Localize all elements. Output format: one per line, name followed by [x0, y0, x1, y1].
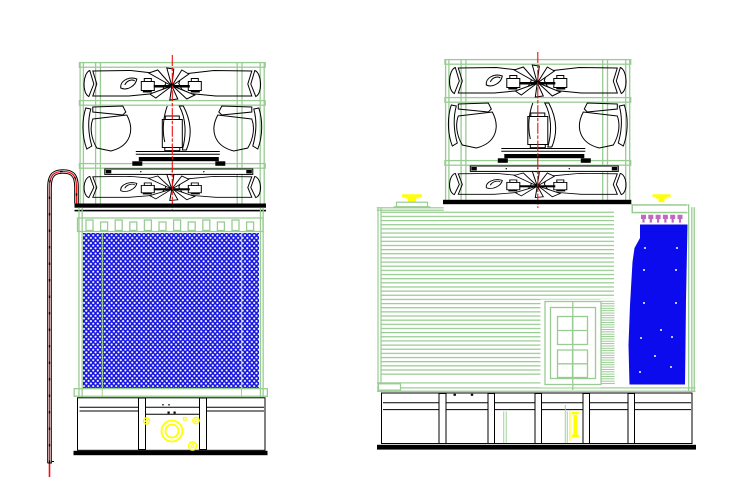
spray-nozzle-header — [632, 204, 688, 222]
distribution-nozzle-strip — [78, 218, 264, 232]
side-elevation-view — [377, 52, 696, 450]
cad-drawing-canvas — [0, 0, 749, 499]
riser-pipe — [48, 172, 77, 478]
fan-deck-right — [443, 200, 631, 204]
collection-basin-left — [74, 398, 268, 455]
cascade-panel — [629, 225, 688, 385]
vent-cap-right — [653, 194, 671, 202]
vent-cap-left — [394, 194, 431, 207]
front-elevation-view — [48, 55, 269, 477]
fan-assembly-left — [79, 55, 265, 211]
collection-basin-right — [377, 393, 696, 450]
fill-mesh-panel — [78, 208, 263, 398]
pump-circles — [144, 417, 200, 450]
cad-drawing — [0, 0, 749, 499]
fan-deck-left — [75, 204, 267, 212]
fan-assembly-right — [445, 52, 631, 208]
fill-support-band — [74, 388, 269, 397]
basin-valve — [569, 411, 579, 441]
access-door — [541, 300, 602, 391]
spray-nozzles — [641, 215, 683, 223]
